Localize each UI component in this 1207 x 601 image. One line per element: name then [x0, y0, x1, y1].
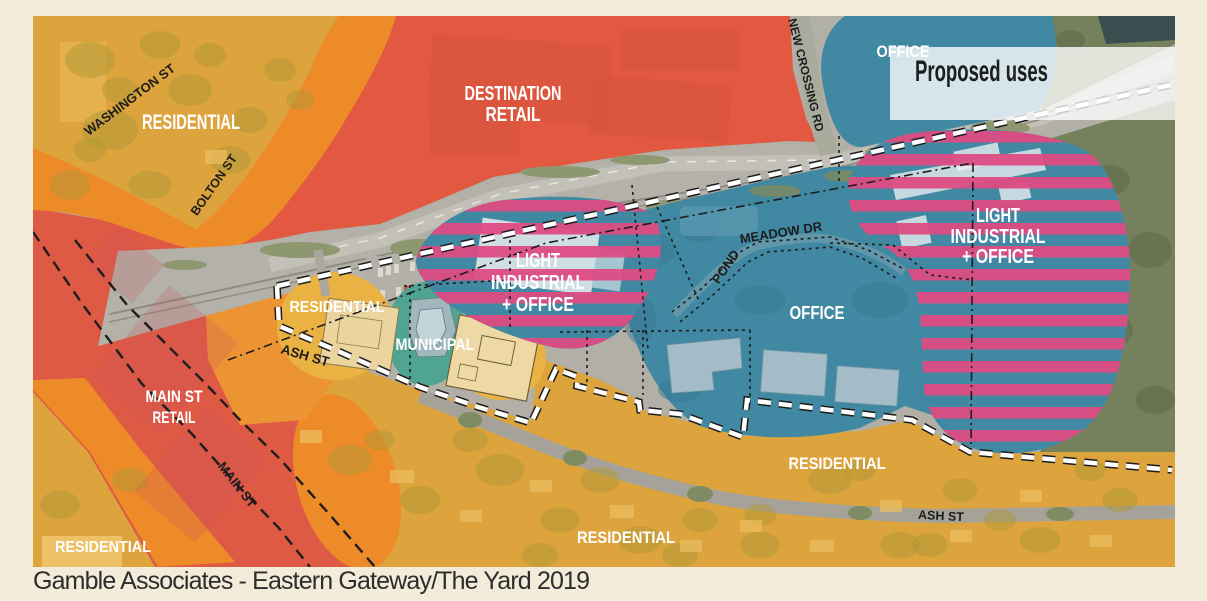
svg-text:LIGHT: LIGHT — [516, 250, 560, 272]
svg-text:MUNICIPAL: MUNICIPAL — [396, 335, 475, 354]
svg-text:INDUSTRIAL: INDUSTRIAL — [951, 226, 1046, 248]
svg-text:LIGHT: LIGHT — [976, 205, 1020, 227]
svg-text:RESIDENTIAL: RESIDENTIAL — [142, 111, 240, 134]
svg-text:RESIDENTIAL: RESIDENTIAL — [55, 539, 151, 556]
svg-text:Proposed uses: Proposed uses — [915, 55, 1048, 88]
svg-text:ASH ST: ASH ST — [918, 508, 965, 524]
svg-text:Gamble Associates - Eastern Ga: Gamble Associates - Eastern Gateway/The … — [33, 567, 590, 595]
svg-text:INDUSTRIAL: INDUSTRIAL — [491, 272, 585, 294]
svg-text:RESIDENTIAL: RESIDENTIAL — [789, 454, 886, 473]
svg-text:OFFICE: OFFICE — [877, 42, 930, 61]
svg-text:RETAIL: RETAIL — [153, 409, 196, 427]
svg-text:RESIDENTIAL: RESIDENTIAL — [577, 528, 675, 547]
svg-text:MAIN ST: MAIN ST — [146, 388, 203, 406]
svg-text:RETAIL: RETAIL — [486, 104, 541, 126]
svg-text:DESTINATION: DESTINATION — [465, 83, 562, 105]
svg-text:+ OFFICE: + OFFICE — [502, 294, 574, 316]
svg-text:+ OFFICE: + OFFICE — [962, 246, 1034, 268]
svg-text:OFFICE: OFFICE — [790, 303, 845, 323]
svg-text:RESIDENTIAL: RESIDENTIAL — [290, 299, 385, 316]
